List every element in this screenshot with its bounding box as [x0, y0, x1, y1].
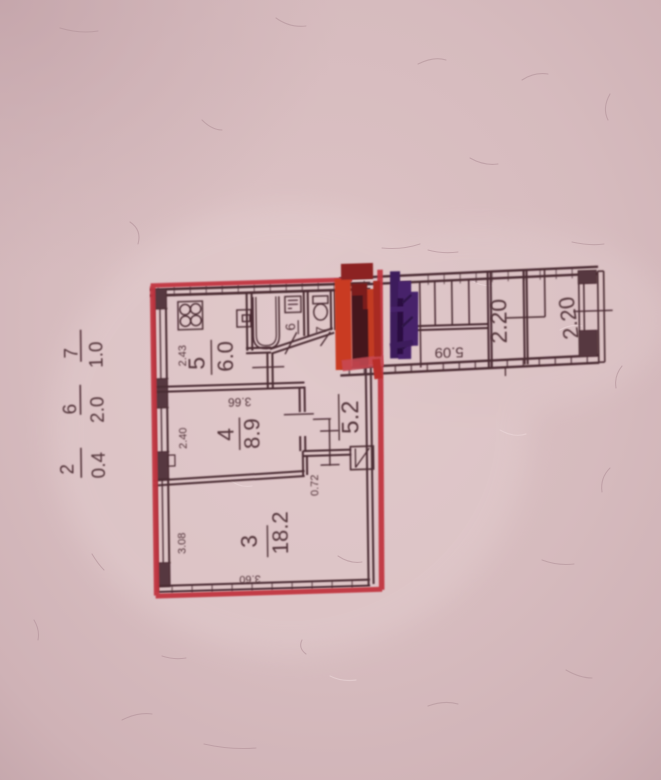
svg-text:18.2: 18.2 — [268, 511, 294, 555]
svg-text:7: 7 — [314, 326, 329, 334]
svg-text:2.20: 2.20 — [485, 298, 512, 344]
svg-text:8.9: 8.9 — [239, 418, 264, 449]
svg-text:0.72: 0.72 — [309, 474, 321, 496]
svg-text:2.0: 2.0 — [88, 396, 109, 423]
svg-text:0.4: 0.4 — [89, 451, 110, 478]
svg-text:3.66: 3.66 — [228, 395, 252, 410]
svg-text:6: 6 — [60, 403, 81, 414]
svg-text:5.2: 5.2 — [337, 400, 364, 434]
svg-text:5.09: 5.09 — [434, 343, 463, 361]
svg-text:2.40: 2.40 — [177, 427, 189, 449]
svg-text:6: 6 — [283, 323, 298, 331]
svg-text:3.60: 3.60 — [239, 572, 261, 585]
svg-text:2: 2 — [57, 464, 78, 475]
svg-text:6.0: 6.0 — [213, 341, 238, 372]
svg-text:3: 3 — [236, 534, 262, 548]
svg-text:4: 4 — [213, 427, 239, 441]
svg-text:7: 7 — [61, 347, 82, 358]
svg-text:3.08: 3.08 — [176, 532, 188, 554]
svg-text:1.0: 1.0 — [86, 341, 107, 368]
svg-text:2.43: 2.43 — [177, 345, 189, 367]
